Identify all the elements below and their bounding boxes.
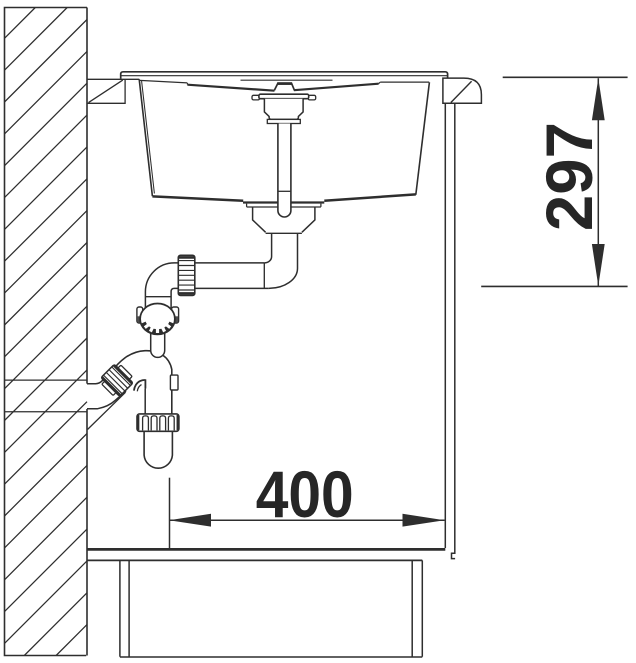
- svg-text:297: 297: [533, 122, 606, 231]
- svg-text:400: 400: [256, 458, 354, 532]
